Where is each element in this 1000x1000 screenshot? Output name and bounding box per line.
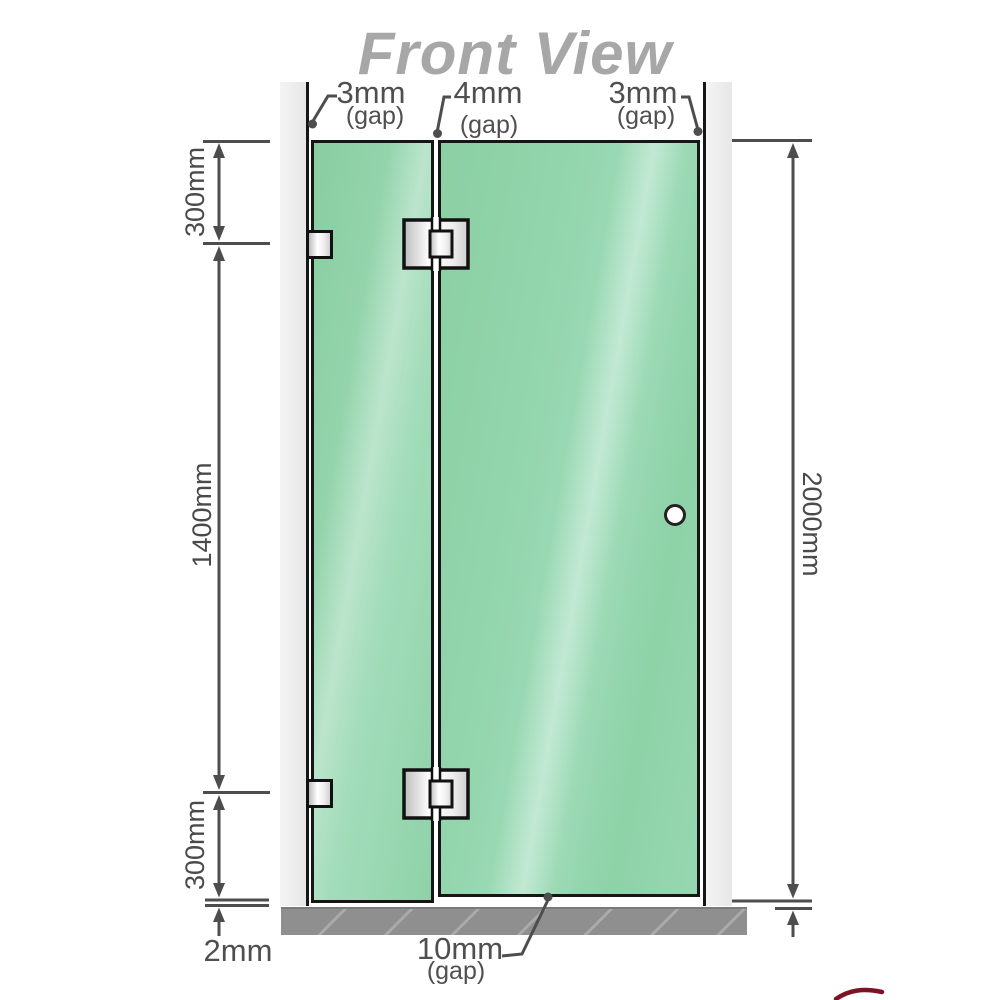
floor-base — [281, 907, 747, 935]
gap-note-top-middle: (gap) — [447, 113, 531, 138]
dimension-label-right-overall: 2000mm — [798, 454, 826, 594]
hinge-shape — [404, 217, 468, 271]
door-knob-icon — [664, 504, 686, 526]
glass-hinge-icon-top — [402, 217, 470, 271]
gap-note-top-left: (gap) — [333, 104, 417, 129]
gap-note-bottom: (gap) — [412, 959, 500, 984]
gap-label-top-middle: 4mm — [450, 78, 526, 108]
dimension-label-left-top: 300mm — [181, 132, 209, 252]
left-wall — [280, 82, 309, 906]
dimension-label-left-bottom: 300mm — [181, 785, 209, 905]
wall-bracket-icon-top — [306, 230, 333, 259]
wall-bracket-icon-bottom — [306, 779, 333, 808]
corner-red-swoosh-icon — [833, 984, 885, 1000]
right-wall — [703, 82, 732, 906]
hinge-shape — [404, 767, 468, 821]
gap-note-top-right: (gap) — [604, 104, 688, 129]
dimension-label-left-middle: 1400mm — [188, 445, 216, 585]
glass-hinge-icon-bottom — [402, 767, 470, 821]
shower-screen-front-view-diagram: Front View — [0, 0, 1000, 1000]
gap-label-floor-left: 2mm — [196, 936, 280, 966]
door-glass-panel — [438, 140, 700, 897]
